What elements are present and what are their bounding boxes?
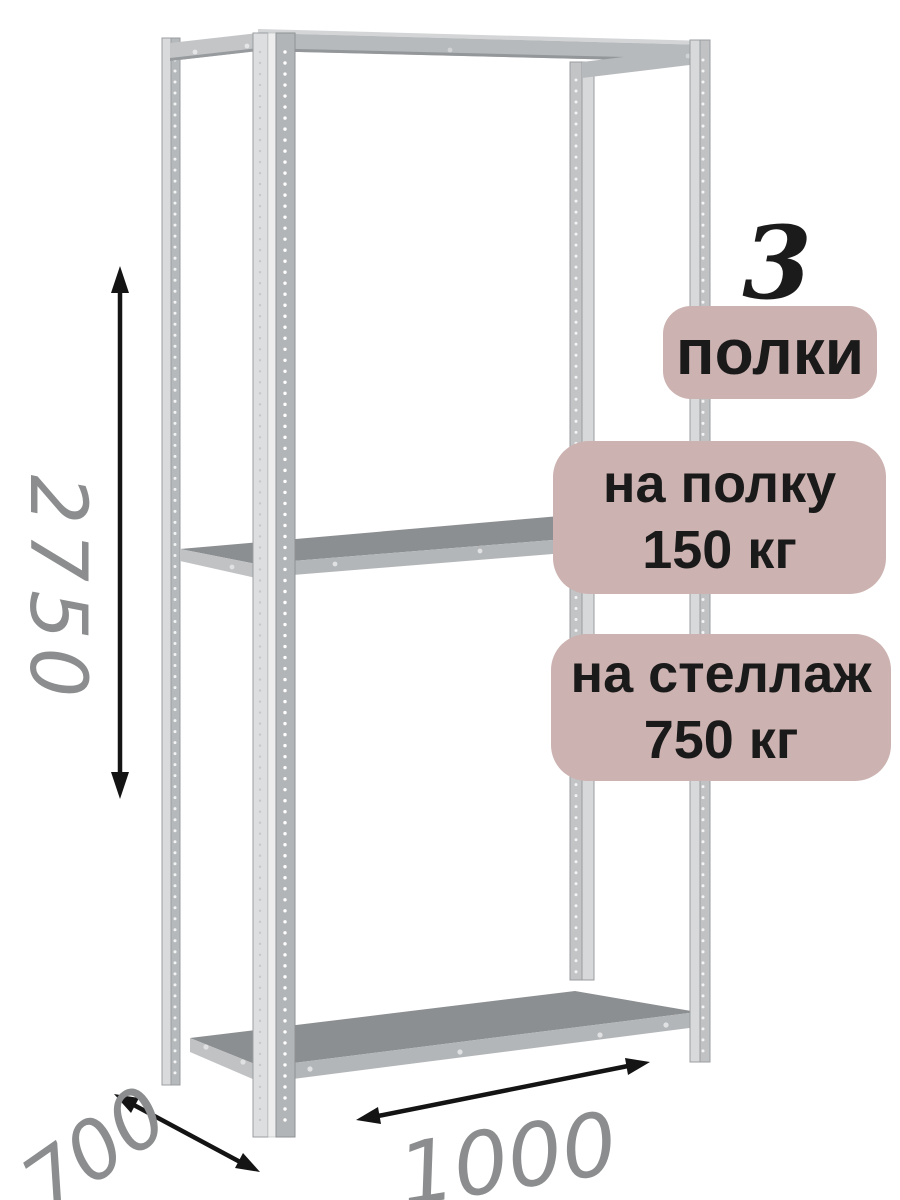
per-shelf-load-line1: на полку: [603, 452, 836, 518]
per-rack-load-badge: на стеллаж 750 кг: [551, 634, 891, 781]
shelf-count-badge-label: полки: [676, 313, 864, 391]
shelf-count-badge: полки: [663, 306, 877, 399]
height-dimension-label: 2750: [12, 475, 102, 706]
back-left-post: [162, 38, 180, 1085]
per-rack-load-line1: на стеллаж: [570, 642, 871, 708]
height-arrow: [111, 266, 129, 799]
top-shelf: [170, 29, 708, 78]
shelf-count-number: 3: [742, 204, 812, 322]
per-rack-load-line2: 750 кг: [644, 708, 799, 774]
front-left-post: [253, 33, 295, 1137]
per-shelf-load-line2: 150 кг: [642, 518, 797, 584]
per-shelf-load-badge: на полку 150 кг: [553, 441, 886, 594]
rack-illustration: [0, 0, 900, 1200]
product-image: 2750 700 1000 3 полки на полку 150 кг на…: [0, 0, 900, 1200]
